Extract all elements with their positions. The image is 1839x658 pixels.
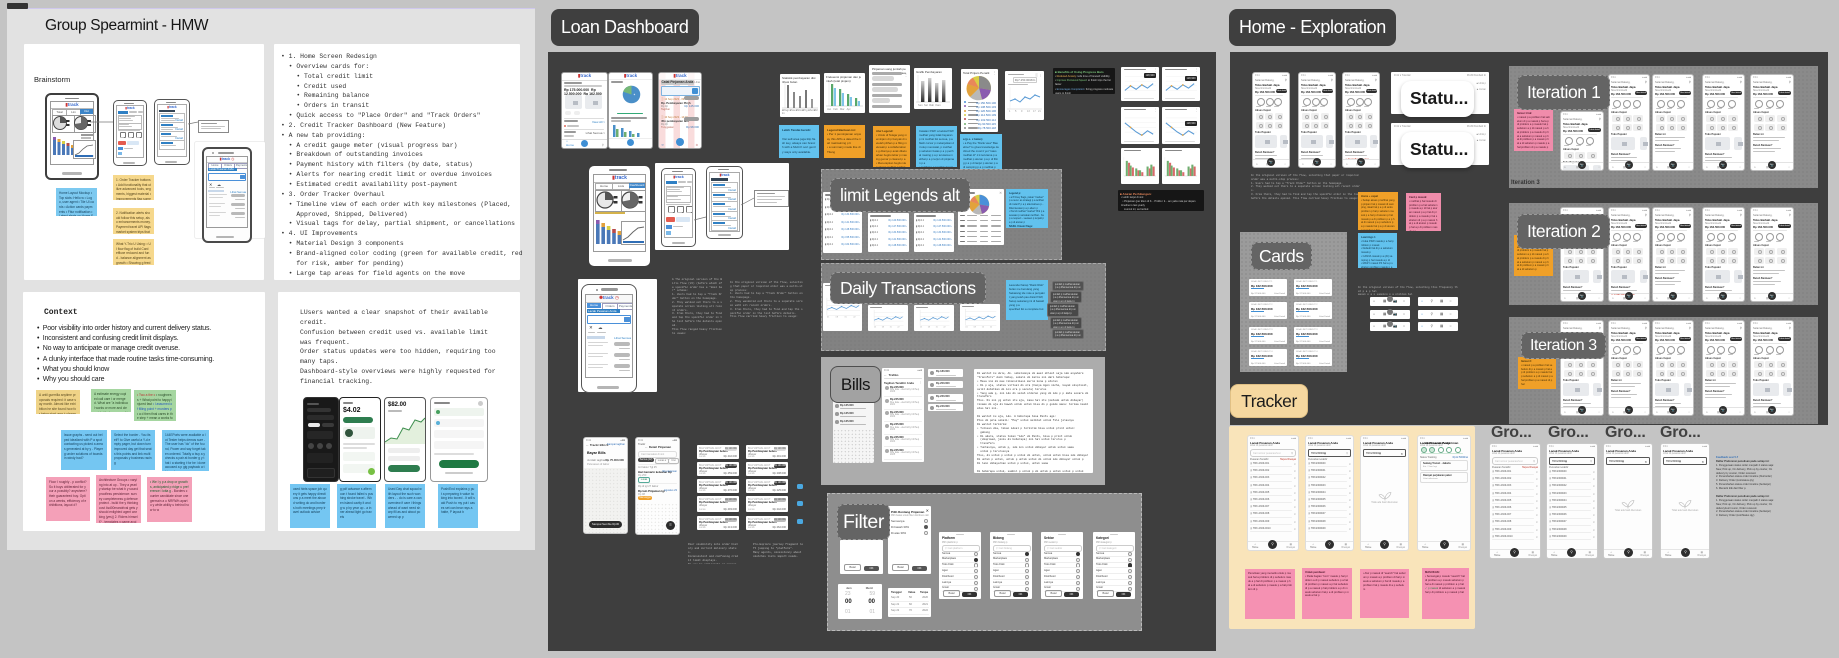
svg-text:15: 15 xyxy=(844,317,847,319)
svg-text:22: 22 xyxy=(990,327,993,328)
svg-text:01: 01 xyxy=(827,317,830,319)
svg-text:22: 22 xyxy=(943,327,945,328)
svg-text:01: 01 xyxy=(874,327,876,328)
svg-text:21: 21 xyxy=(1038,110,1041,113)
svg-text:08: 08 xyxy=(974,327,977,328)
svg-text:15: 15 xyxy=(936,327,938,328)
svg-text:9: 9 xyxy=(1021,110,1023,113)
svg-text:08: 08 xyxy=(882,327,884,328)
svg-text:01: 01 xyxy=(920,327,922,328)
svg-text:08: 08 xyxy=(836,317,839,319)
svg-text:5: 5 xyxy=(1015,110,1017,113)
svg-text:01: 01 xyxy=(965,327,968,328)
svg-text:15: 15 xyxy=(982,327,985,328)
svg-text:22: 22 xyxy=(853,317,856,319)
svg-text:08: 08 xyxy=(928,327,930,328)
svg-text:17: 17 xyxy=(1033,110,1036,113)
svg-text:22: 22 xyxy=(897,327,899,328)
svg-text:1: 1 xyxy=(1009,110,1011,113)
svg-text:13: 13 xyxy=(1027,110,1030,113)
svg-text:15: 15 xyxy=(890,327,892,328)
